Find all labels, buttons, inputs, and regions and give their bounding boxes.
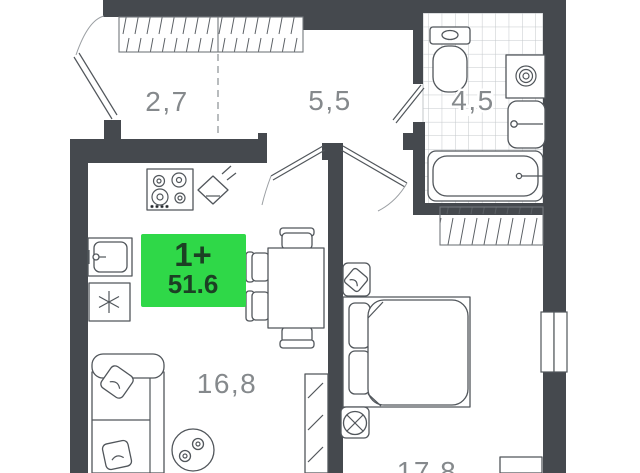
- floor-plan: 2,7 5,5 4,5 16,8 17,8 1+ 51.6: [0, 0, 640, 473]
- bathtub-icon: [428, 151, 543, 201]
- balcony-area-label: 2,7: [145, 86, 188, 117]
- hallway-area-label: 5,5: [308, 85, 351, 116]
- wall-bathroom-left-corner: [403, 133, 423, 150]
- dresser: [500, 457, 542, 473]
- wall-center-post: [322, 143, 343, 160]
- wall-top-bathroom: [423, 0, 566, 13]
- wall-balcony-stub: [104, 120, 121, 139]
- wall-kitchen-top-post: [258, 133, 267, 163]
- area-badge[interactable]: 1+ 51.6: [141, 234, 246, 307]
- wall-bathroom-left-upper: [413, 30, 423, 84]
- bedroom-area-label: 17,8: [397, 456, 458, 473]
- wall-right: [543, 13, 566, 473]
- nightstand-top: [343, 263, 370, 296]
- badge-area-label: 51.6: [168, 269, 219, 299]
- wall-left: [70, 139, 88, 473]
- bed: [343, 297, 470, 407]
- badge-rooms-label: 1+: [174, 236, 212, 273]
- nightstand-bottom: [341, 407, 369, 438]
- washing-machine-icon: [506, 55, 545, 98]
- bathroom-area-label: 4,5: [451, 85, 494, 116]
- wall-kitchen-top: [70, 139, 258, 163]
- bathroom-sink-icon: [508, 101, 545, 148]
- sofa: [92, 354, 164, 473]
- toilet-icon: [430, 27, 470, 92]
- window: [541, 312, 567, 372]
- wall-top-hallway: [303, 0, 423, 30]
- fridge-icon: [89, 283, 130, 321]
- coffee-table: [172, 429, 214, 471]
- stove-icon: [147, 169, 193, 210]
- living-area-label: 16,8: [197, 368, 258, 399]
- wardrobe: [440, 207, 543, 245]
- wall-top-balcony: [103, 0, 303, 17]
- kitchen-sink-icon: [88, 238, 132, 276]
- tv-stand: [305, 374, 328, 473]
- balcony-glazing-band: [119, 17, 303, 52]
